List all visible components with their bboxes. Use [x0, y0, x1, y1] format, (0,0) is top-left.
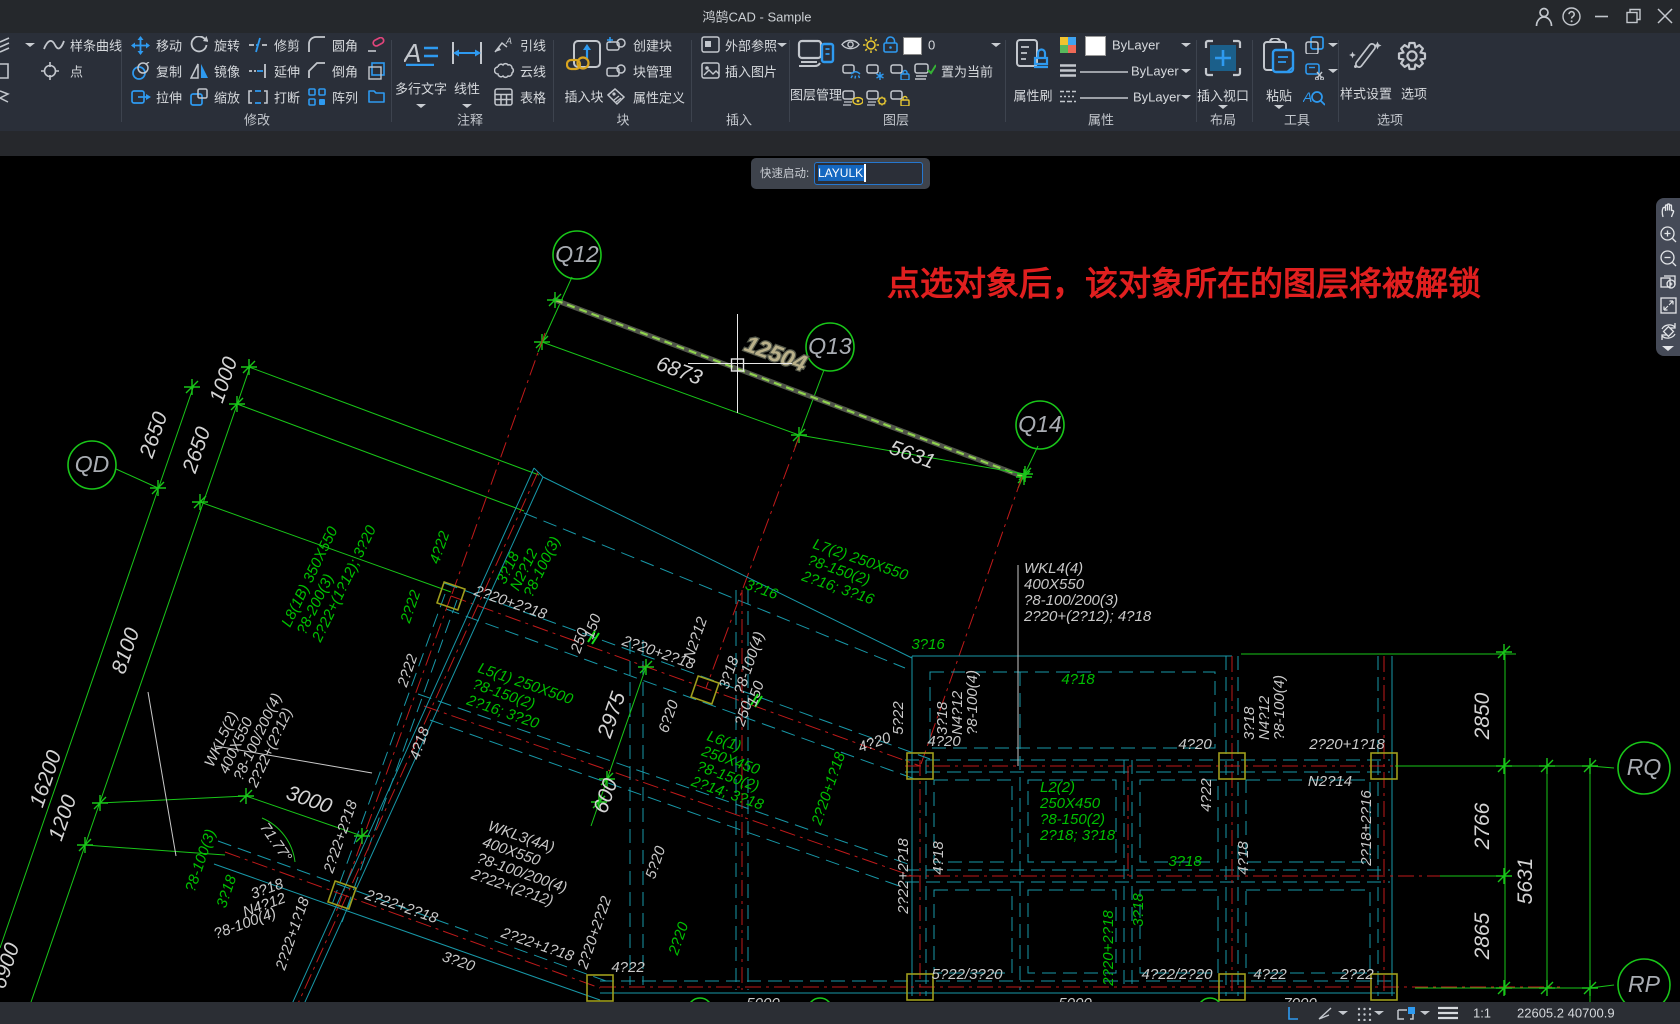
svg-text:A: A — [404, 40, 421, 66]
svg-text:2?22+1?18: 2?22+1?18 — [498, 924, 576, 965]
svg-text:4?22: 4?22 — [426, 528, 453, 566]
svg-text:2?20+1?18: 2?20+1?18 — [1308, 736, 1385, 753]
svg-text:5?22: 5?22 — [890, 701, 907, 735]
svg-text:6?20: 6?20 — [655, 697, 682, 735]
svg-text:2?20+(2?12); 4?18: 2?20+(2?12); 4?18 — [1023, 608, 1152, 625]
svg-text:5?20: 5?20 — [642, 843, 669, 881]
svg-text:2?22: 2?22 — [1339, 966, 1374, 983]
svg-text:12504: 12504 — [741, 330, 810, 376]
svg-text:Q13: Q13 — [808, 333, 852, 359]
svg-text:8100: 8100 — [107, 625, 144, 677]
svg-text:4?22/2?20: 4?22/2?20 — [1142, 966, 1214, 983]
svg-text:WKL4(4): WKL4(4) — [1024, 560, 1083, 577]
svg-text:A: A — [505, 36, 512, 46]
svg-text:4?22: 4?22 — [1198, 778, 1215, 812]
svg-text:RP: RP — [1628, 971, 1661, 997]
svg-text:Q12: Q12 — [555, 241, 599, 267]
svg-text:3?18: 3?18 — [213, 872, 240, 910]
svg-text:?8-100(4): ?8-100(4) — [1271, 675, 1288, 740]
svg-text:3000: 3000 — [283, 781, 335, 818]
svg-text:?8-150(2): ?8-150(2) — [1040, 811, 1105, 828]
svg-text:2650: 2650 — [178, 424, 215, 477]
svg-text:2975: 2975 — [593, 689, 630, 742]
svg-text:6873: 6873 — [653, 352, 705, 390]
svg-text:600: 600 — [589, 775, 622, 816]
svg-text:Q14: Q14 — [1018, 411, 1061, 437]
svg-text:5631: 5631 — [1514, 858, 1537, 905]
svg-text:4?22: 4?22 — [1253, 966, 1287, 983]
svg-text:3?16: 3?16 — [911, 636, 945, 653]
svg-text:6900: 6900 — [0, 940, 24, 992]
svg-text:?8-100(4): ?8-100(4) — [964, 670, 981, 735]
svg-text:3?20: 3?20 — [440, 948, 478, 975]
svg-text:5000: 5000 — [746, 995, 780, 1002]
svg-text:4?18: 4?18 — [930, 841, 947, 875]
svg-text:N2?14: N2?14 — [1308, 773, 1352, 790]
svg-text:2865: 2865 — [1471, 912, 1494, 960]
svg-text:4?20: 4?20 — [1178, 736, 1212, 753]
svg-text:2?22+2?18: 2?22+2?18 — [895, 838, 912, 915]
svg-text:3?18: 3?18 — [1168, 853, 1202, 870]
svg-text:2650: 2650 — [135, 409, 172, 462]
svg-text:2?20: 2?20 — [665, 919, 692, 958]
svg-text:?8-100(3): ?8-100(3) — [182, 827, 219, 894]
svg-text:3?16: 3?16 — [743, 576, 781, 603]
svg-text:250X450: 250X450 — [1039, 795, 1101, 812]
svg-text:2?22: 2?22 — [394, 651, 421, 690]
svg-text:4?20: 4?20 — [856, 729, 894, 756]
svg-text:点选对象后，该对象所在的图层将被解锁: 点选对象后，该对象所在的图层将被解锁 — [887, 265, 1481, 302]
svg-text:?8-100/200(3): ?8-100/200(3) — [1024, 592, 1118, 609]
svg-text:N2?12: N2?12 — [681, 614, 712, 662]
svg-text:4?18: 4?18 — [1061, 671, 1095, 688]
svg-text:2766: 2766 — [1471, 802, 1494, 850]
svg-text:QD: QD — [75, 451, 110, 477]
svg-text:4?18: 4?18 — [1235, 841, 1252, 875]
svg-text:2?22: 2?22 — [397, 587, 424, 626]
svg-text:7000: 7000 — [1283, 995, 1317, 1002]
svg-text:400X550: 400X550 — [1024, 576, 1085, 593]
svg-text:5?22/3?20: 5?22/3?20 — [932, 966, 1004, 983]
svg-text:2850: 2850 — [1471, 692, 1494, 740]
svg-text:2?18; 3?18: 2?18; 3?18 — [1039, 827, 1116, 844]
svg-text:3?18: 3?18 — [1130, 893, 1147, 927]
svg-text:RQ: RQ — [1627, 754, 1662, 780]
svg-text:2?18+2?16: 2?18+2?16 — [1358, 790, 1375, 867]
svg-text:4?22: 4?22 — [611, 959, 645, 976]
svg-text:2?20+1?18: 2?20+1?18 — [808, 749, 849, 827]
svg-text:5000: 5000 — [1058, 995, 1092, 1002]
svg-text:2?20+2?22: 2?20+2?22 — [574, 893, 615, 971]
svg-text:2?22+2?18: 2?22+2?18 — [362, 886, 440, 927]
svg-text:A: A — [1303, 89, 1312, 105]
svg-text:150: 150 — [581, 611, 605, 641]
svg-text:2?20+2?18: 2?20+2?18 — [1100, 910, 1117, 987]
svg-text:L2(2): L2(2) — [1040, 779, 1075, 796]
